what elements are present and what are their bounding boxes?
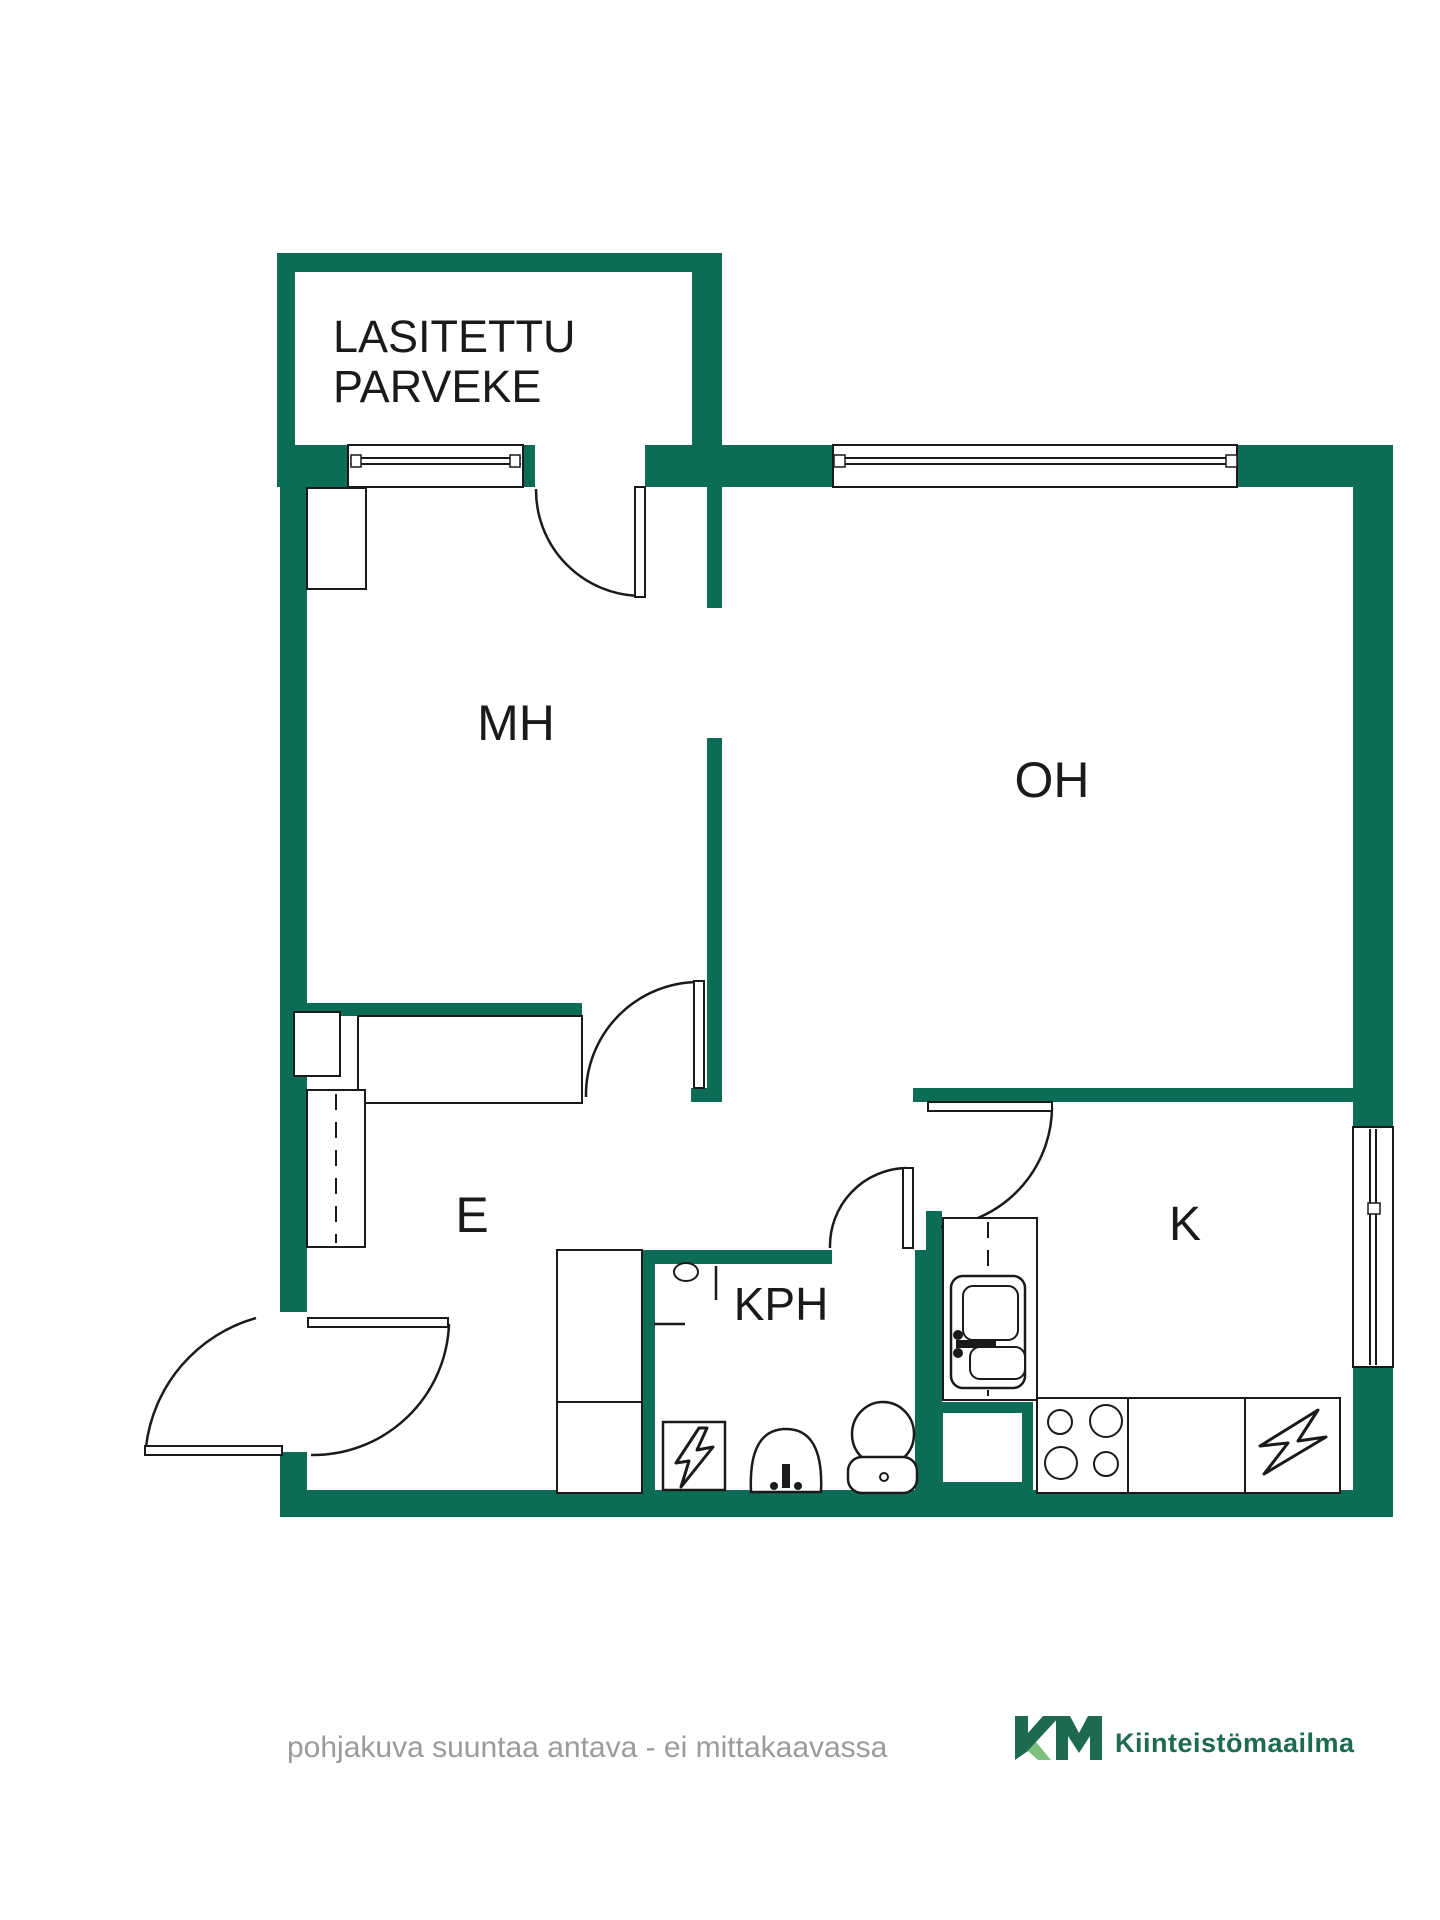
washing-machine-icon — [663, 1422, 725, 1490]
bedroom-door — [586, 981, 704, 1097]
kitchen-corner-shaft — [943, 1413, 1022, 1482]
hall-closet — [307, 1090, 365, 1247]
km-logo-icon — [1015, 1716, 1102, 1760]
floorplan-page: LASITETTU PARVEKE MH OH E KPH K pohjakuv… — [0, 0, 1440, 1920]
bedroom-closet — [307, 488, 366, 589]
balcony-label-line2: PARVEKE — [333, 361, 541, 412]
living-room-window — [833, 445, 1237, 487]
wall-bottom — [280, 1490, 1393, 1517]
room-label-living-room: OH — [1015, 752, 1090, 808]
stove-icon — [1037, 1398, 1128, 1493]
furniture — [294, 488, 642, 1493]
wall-right-upper — [1353, 445, 1393, 1127]
wall-divider-lower — [707, 738, 722, 1088]
wall-top-middle — [645, 445, 833, 487]
entrance-door — [145, 1318, 449, 1455]
wall-top-sliver — [523, 445, 535, 487]
wall-left-upper — [280, 445, 307, 1312]
wall-balcony-right — [692, 253, 722, 447]
wall-shaft — [294, 1012, 340, 1076]
shower-icon — [654, 1263, 716, 1324]
windows — [348, 445, 1393, 1367]
kitchen-counter — [1128, 1398, 1245, 1493]
balcony-label-line1: LASITETTU — [333, 311, 576, 362]
room-label-kitchen: K — [1169, 1198, 1201, 1251]
wall-bedroom-door-stub — [691, 1088, 722, 1102]
wall-bathroom-top — [643, 1250, 832, 1264]
wall-bedroom-hall — [307, 1003, 582, 1016]
kitchen-sink — [943, 1218, 1037, 1400]
footer: pohjakuva suuntaa antava - ei mittakaava… — [287, 1716, 1355, 1764]
washbasin-icon — [751, 1429, 821, 1492]
wall-kitchen-living — [913, 1088, 1353, 1102]
balcony-door — [536, 487, 645, 597]
wall-bathroom-left — [643, 1250, 655, 1490]
wall-balcony-left — [277, 253, 295, 447]
bathroom-door — [830, 1168, 913, 1248]
bathroom-side-cabinet — [557, 1250, 642, 1493]
bedroom-window — [348, 445, 523, 487]
wall-divider-upper-stub — [707, 487, 722, 608]
room-label-entry: E — [455, 1187, 488, 1243]
wall-balcony-top — [277, 253, 722, 272]
room-label-bathroom: KPH — [734, 1278, 829, 1330]
toilet-icon — [848, 1402, 917, 1493]
kitchen-window — [1353, 1127, 1393, 1367]
room-label-bedroom: MH — [477, 695, 555, 751]
kitchen-door — [928, 1102, 1052, 1227]
hall-wardrobe — [358, 1016, 582, 1103]
floor-plan: LASITETTU PARVEKE MH OH E KPH K pohjakuv… — [0, 0, 1440, 1920]
disclaimer-text: pohjakuva suuntaa antava - ei mittakaava… — [287, 1731, 888, 1764]
refrigerator-icon — [1245, 1398, 1340, 1493]
wall-bathroom-right-stub — [926, 1211, 942, 1250]
brand-name: Kiinteistömaailma — [1115, 1728, 1355, 1758]
